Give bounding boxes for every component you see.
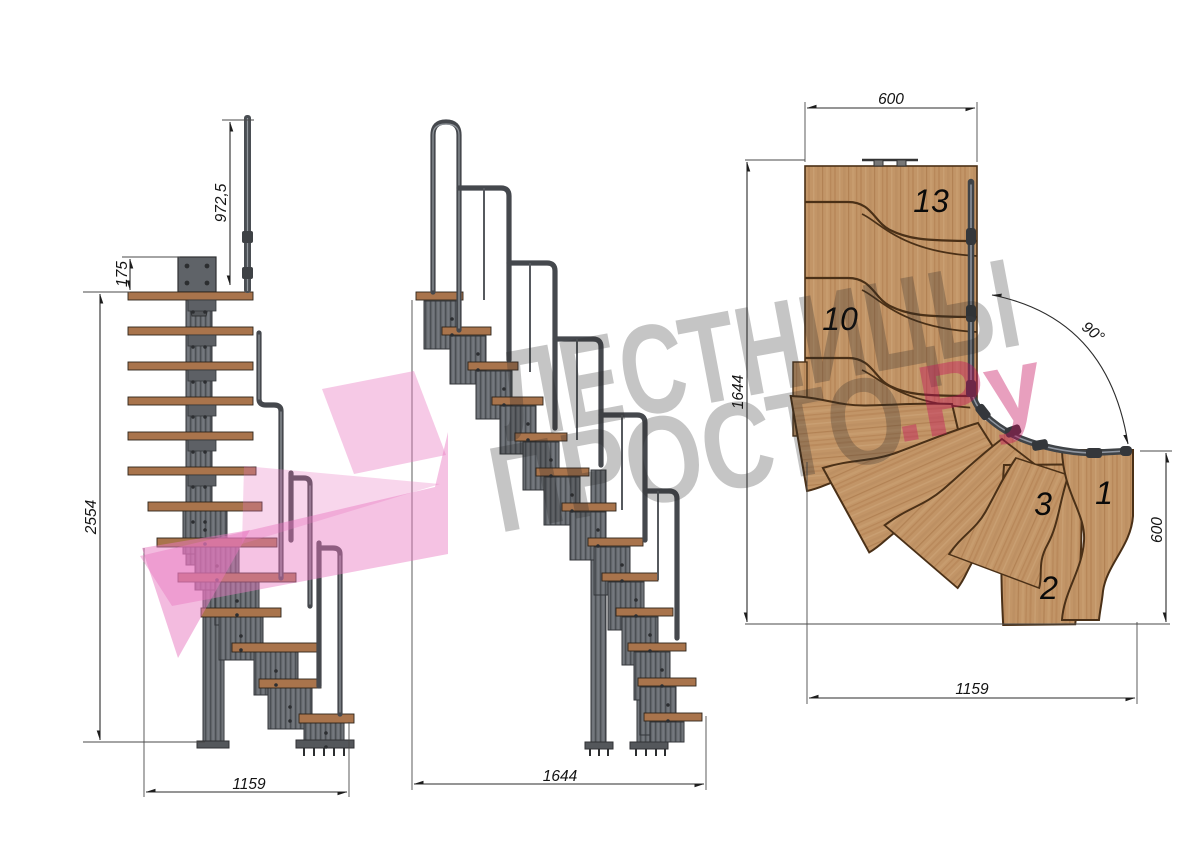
svg-text:972,5: 972,5 xyxy=(213,183,230,222)
svg-text:1: 1 xyxy=(1095,475,1113,511)
svg-text:600: 600 xyxy=(1149,517,1166,543)
svg-text:3: 3 xyxy=(1034,486,1052,522)
svg-text:175: 175 xyxy=(114,261,131,287)
svg-text:1644: 1644 xyxy=(543,768,578,785)
svg-text:2: 2 xyxy=(1039,570,1058,606)
svg-text:13: 13 xyxy=(913,183,949,219)
svg-text:600: 600 xyxy=(878,91,904,108)
svg-text:1159: 1159 xyxy=(232,776,266,793)
svg-text:1159: 1159 xyxy=(955,681,989,698)
svg-text:2554: 2554 xyxy=(83,499,100,535)
